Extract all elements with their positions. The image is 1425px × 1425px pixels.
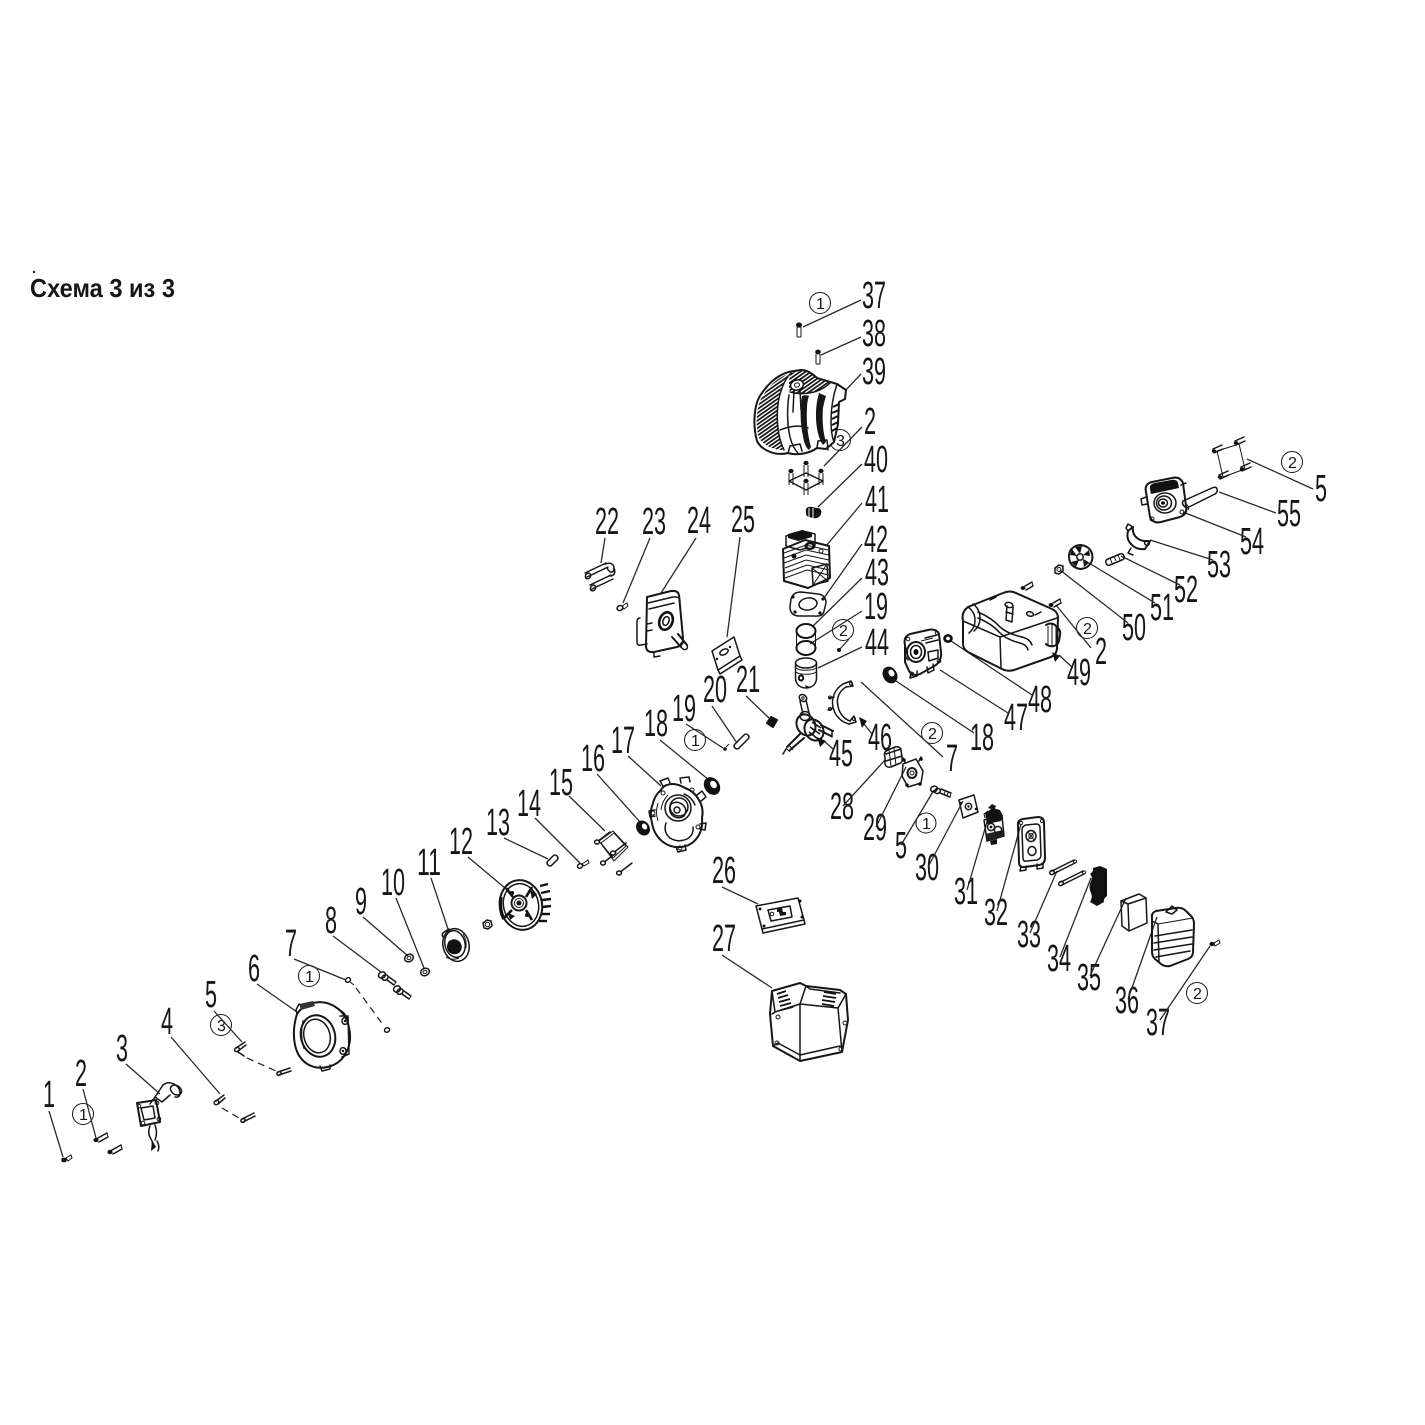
svg-text:37: 37 [862,275,886,317]
svg-text:2: 2 [839,623,848,640]
svg-text:34: 34 [1047,938,1071,980]
svg-text:4: 4 [161,1001,173,1043]
svg-text:2: 2 [1083,621,1092,638]
svg-text:1: 1 [922,816,931,833]
svg-text:40: 40 [864,439,888,481]
svg-text:1: 1 [816,296,825,313]
svg-text:33: 33 [1017,914,1041,956]
svg-text:39: 39 [862,351,886,393]
svg-text:20: 20 [703,669,727,711]
svg-text:5: 5 [895,825,907,867]
svg-text:24: 24 [687,500,711,542]
svg-text:26: 26 [712,850,736,892]
svg-text:41: 41 [865,479,889,521]
svg-text:3: 3 [217,1018,226,1035]
svg-text:14: 14 [517,783,541,825]
svg-text:51: 51 [1150,587,1174,629]
svg-text:11: 11 [417,842,441,884]
svg-text:9: 9 [355,881,367,923]
svg-text:53: 53 [1207,544,1231,586]
svg-text:22: 22 [595,501,619,543]
svg-text:1: 1 [691,733,700,750]
svg-text:1: 1 [43,1074,55,1116]
svg-text:21: 21 [736,659,760,701]
svg-text:23: 23 [642,501,666,543]
svg-text:18: 18 [970,717,994,759]
svg-text:7: 7 [285,923,297,965]
svg-text:2: 2 [1095,631,1107,673]
svg-text:2: 2 [928,726,937,743]
svg-text:3: 3 [116,1028,128,1070]
svg-text:2: 2 [75,1053,87,1095]
svg-text:27: 27 [712,918,736,960]
svg-text:28: 28 [830,786,854,828]
svg-text:32: 32 [984,892,1008,934]
svg-text:1: 1 [79,1107,88,1124]
svg-text:50: 50 [1122,607,1146,649]
svg-text:6: 6 [248,948,260,990]
svg-text:52: 52 [1174,569,1198,611]
svg-text:45: 45 [829,733,853,775]
svg-text:25: 25 [731,499,755,541]
svg-text:35: 35 [1077,957,1101,999]
svg-text:5: 5 [1315,468,1327,510]
svg-text:2: 2 [864,401,876,443]
svg-text:2: 2 [1193,986,1202,1003]
svg-text:2: 2 [1288,455,1297,472]
svg-text:36: 36 [1115,980,1139,1022]
svg-text:37: 37 [1146,1002,1170,1044]
svg-text:16: 16 [581,738,605,780]
svg-text:3: 3 [836,433,845,450]
svg-text:10: 10 [381,862,405,904]
svg-text:1: 1 [305,969,314,986]
svg-text:19: 19 [672,688,696,730]
svg-text:13: 13 [486,802,510,844]
svg-text:17: 17 [611,720,635,762]
svg-text:Схема 3 из 3: Схема 3 из 3 [30,273,175,303]
svg-text:5: 5 [205,974,217,1016]
svg-text:12: 12 [449,821,473,863]
svg-text:44: 44 [865,622,889,664]
svg-text:38: 38 [862,313,886,355]
svg-text:47: 47 [1004,697,1028,739]
svg-text:8: 8 [325,900,337,942]
svg-text:18: 18 [644,703,668,745]
svg-text:31: 31 [954,871,978,913]
svg-text:15: 15 [549,762,573,804]
svg-text:54: 54 [1240,521,1264,563]
svg-text:55: 55 [1277,493,1301,535]
svg-text:49: 49 [1067,652,1091,694]
svg-text:48: 48 [1028,679,1052,721]
svg-text:7: 7 [946,738,958,780]
